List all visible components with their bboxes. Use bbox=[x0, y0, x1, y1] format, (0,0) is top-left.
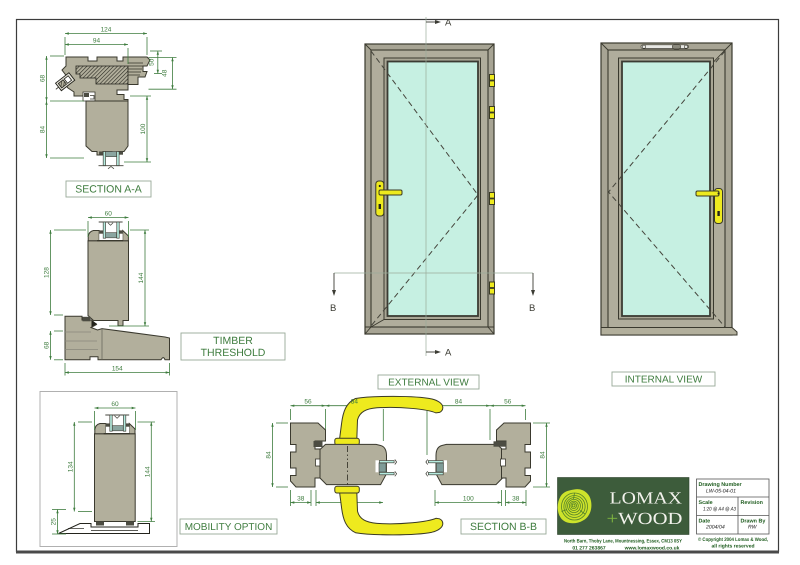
svg-text:154: 154 bbox=[112, 366, 123, 373]
svg-text:SECTION A-A: SECTION A-A bbox=[75, 184, 142, 196]
svg-text:Scale: Scale bbox=[699, 500, 713, 506]
svg-text:84: 84 bbox=[266, 451, 273, 459]
svg-text:84: 84 bbox=[540, 451, 547, 459]
svg-text:50: 50 bbox=[149, 58, 156, 66]
svg-text:01 277 263867: 01 277 263867 bbox=[572, 546, 606, 552]
svg-text:94: 94 bbox=[93, 38, 101, 45]
svg-text:144: 144 bbox=[144, 466, 151, 477]
svg-text:60: 60 bbox=[111, 401, 119, 408]
svg-text:EXTERNAL VIEW: EXTERNAL VIEW bbox=[388, 378, 469, 389]
svg-text:144: 144 bbox=[138, 272, 145, 283]
svg-text:84: 84 bbox=[455, 399, 463, 406]
svg-text:128: 128 bbox=[44, 267, 51, 278]
svg-text:1:20 @ A4 @ A3: 1:20 @ A4 @ A3 bbox=[703, 507, 736, 513]
svg-text:84: 84 bbox=[351, 399, 359, 406]
svg-text:+WOOD: +WOOD bbox=[607, 509, 683, 528]
svg-text:Revision: Revision bbox=[741, 500, 763, 506]
svg-text:38: 38 bbox=[297, 496, 305, 503]
svg-text:100: 100 bbox=[140, 123, 147, 134]
svg-text:THRESHOLD: THRESHOLD bbox=[201, 347, 266, 359]
svg-text:Drawing Number: Drawing Number bbox=[699, 482, 743, 488]
svg-text:56: 56 bbox=[304, 399, 312, 406]
svg-text:www.lomaxwood.co.uk: www.lomaxwood.co.uk bbox=[624, 546, 680, 552]
svg-text:A: A bbox=[445, 348, 452, 359]
svg-text:100: 100 bbox=[463, 496, 474, 503]
svg-text:all rights reserved: all rights reserved bbox=[711, 544, 754, 550]
svg-text:North Barn, Thoby Lane, Mountn: North Barn, Thoby Lane, Mountnessing, Es… bbox=[564, 539, 683, 545]
svg-text:A: A bbox=[445, 18, 452, 29]
svg-text:48: 48 bbox=[162, 69, 169, 77]
svg-text:124: 124 bbox=[101, 27, 112, 34]
svg-text:LW-05-04-01: LW-05-04-01 bbox=[706, 489, 736, 495]
svg-text:TIMBER: TIMBER bbox=[213, 335, 253, 347]
svg-text:68: 68 bbox=[44, 341, 51, 349]
svg-text:© Copyright 2004 Lomax & Wood,: © Copyright 2004 Lomax & Wood, bbox=[698, 537, 769, 543]
svg-text:134: 134 bbox=[67, 461, 74, 472]
svg-text:2004/04: 2004/04 bbox=[705, 525, 725, 531]
svg-text:RW: RW bbox=[748, 525, 758, 531]
svg-text:56: 56 bbox=[504, 399, 512, 406]
svg-text:B: B bbox=[330, 303, 336, 314]
svg-text:MOBILITY OPTION: MOBILITY OPTION bbox=[185, 522, 273, 533]
svg-text:84: 84 bbox=[40, 126, 47, 134]
svg-text:B: B bbox=[529, 303, 535, 314]
svg-text:25: 25 bbox=[51, 518, 58, 526]
svg-text:INTERNAL VIEW: INTERNAL VIEW bbox=[625, 375, 703, 386]
svg-text:SECTION B-B: SECTION B-B bbox=[470, 521, 537, 533]
svg-text:68: 68 bbox=[40, 75, 47, 83]
svg-text:LOMAX: LOMAX bbox=[610, 489, 683, 508]
svg-text:60: 60 bbox=[105, 211, 113, 218]
svg-text:38: 38 bbox=[512, 496, 520, 503]
